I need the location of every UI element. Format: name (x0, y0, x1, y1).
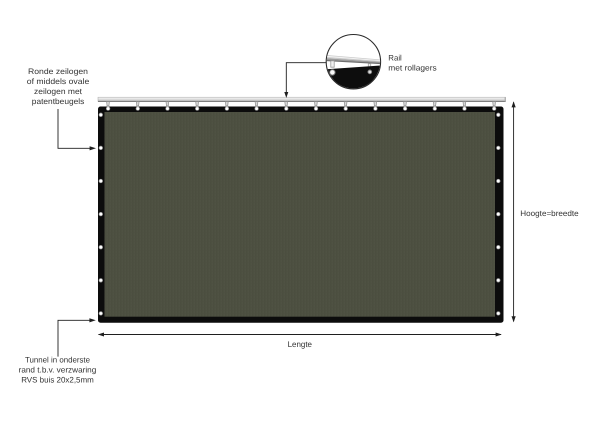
svg-text:RVS buis 20x2,5mm: RVS buis 20x2,5mm (21, 376, 94, 385)
svg-text:met rollagers: met rollagers (388, 64, 436, 73)
svg-text:Rail: Rail (388, 54, 402, 63)
svg-text:zeilogen met: zeilogen met (34, 87, 83, 96)
svg-text:of middels ovale: of middels ovale (27, 77, 90, 86)
svg-text:Ronde zeilogen: Ronde zeilogen (28, 67, 88, 76)
svg-text:patentbeugels: patentbeugels (32, 97, 85, 106)
svg-text:Hoogte=breedte: Hoogte=breedte (520, 209, 579, 218)
svg-text:Tunnel in onderste: Tunnel in onderste (25, 356, 91, 365)
svg-text:rand t.b.v. verzwaring: rand t.b.v. verzwaring (19, 366, 97, 375)
svg-text:Lengte: Lengte (288, 340, 313, 349)
